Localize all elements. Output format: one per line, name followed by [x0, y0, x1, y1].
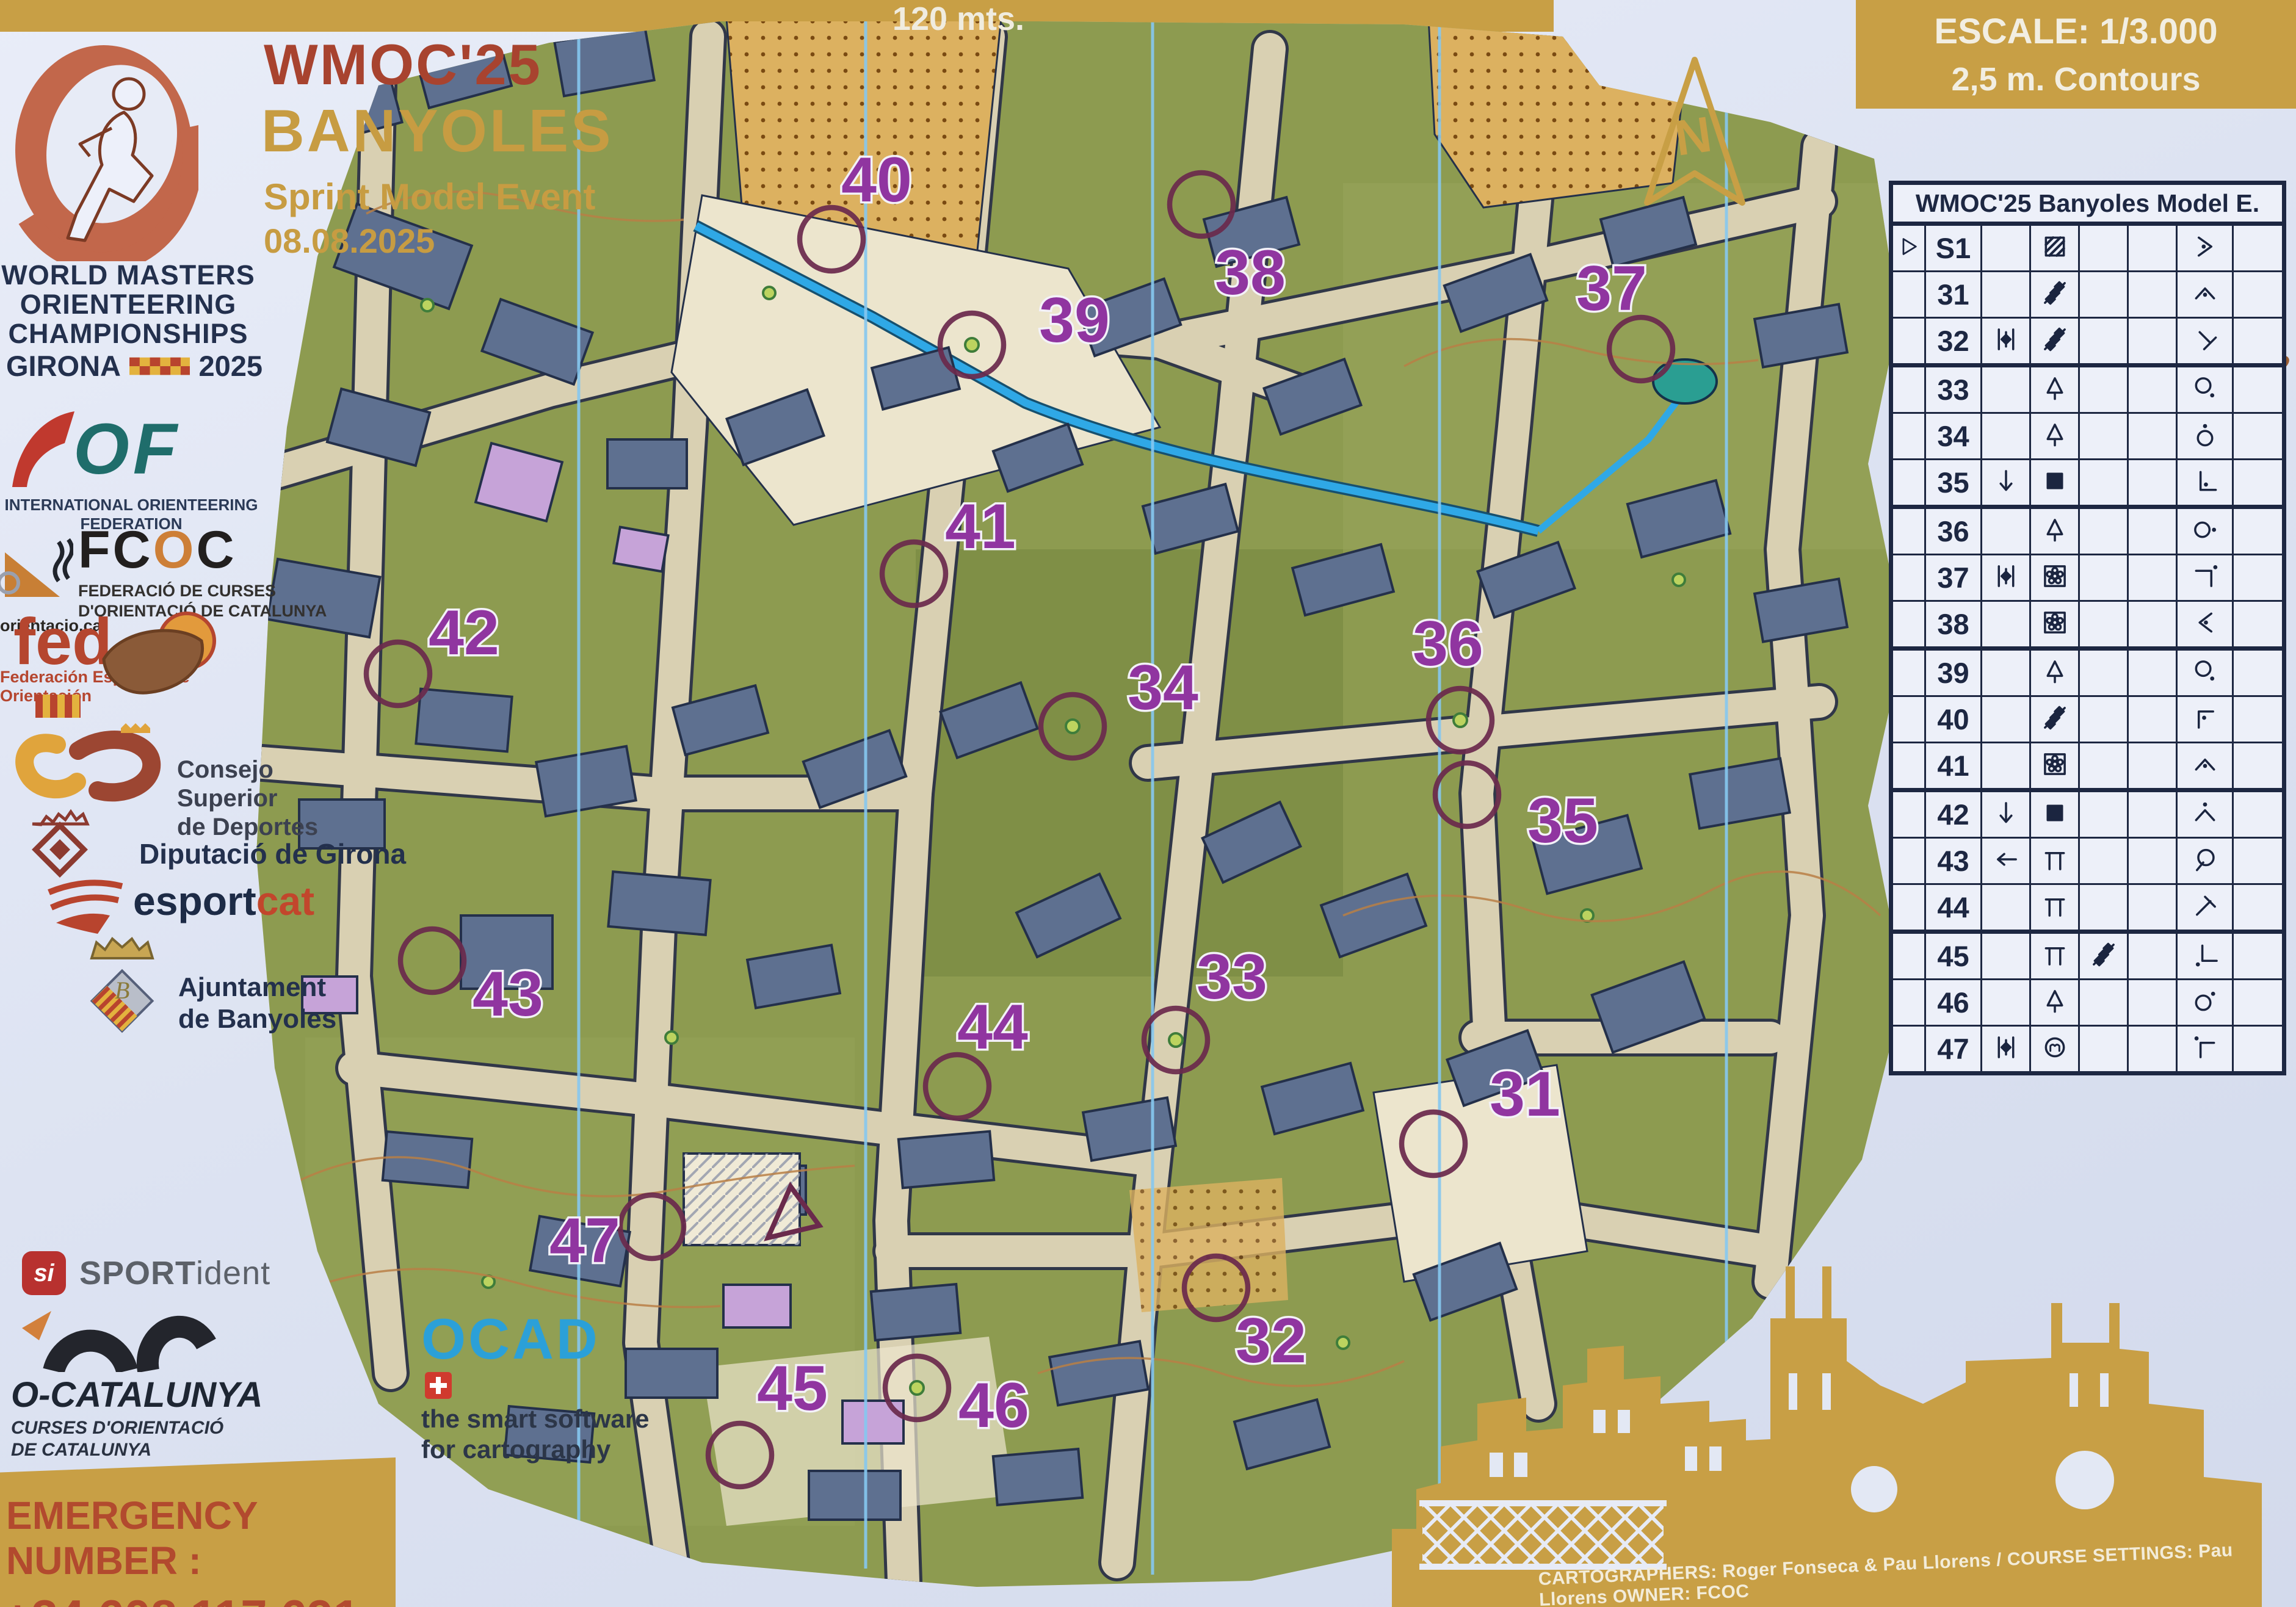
sym-corner-nw-dot-above-icon	[2177, 1026, 2233, 1074]
cd-row-45: 45	[1891, 932, 2284, 980]
cd-row-44: 44	[1891, 884, 2284, 932]
esportcat-name: esportcat	[133, 878, 314, 924]
iof-swoosh-icon	[6, 408, 79, 493]
control-number-45: 45	[757, 1353, 828, 1424]
empty-cell	[2128, 884, 2177, 932]
sym-tree-icon	[2030, 649, 2079, 696]
control-code: 40	[1925, 696, 1982, 743]
sym-corner-ne-dot-icon	[2177, 555, 2233, 601]
cd-row-41: 41	[1891, 743, 2284, 790]
org-line-3: CHAMPIONSHIPS	[0, 318, 256, 350]
empty-cell	[2079, 224, 2128, 272]
control-number-37: 37	[1576, 253, 1647, 324]
empty-cell	[2128, 318, 2177, 366]
sym-building-icon	[2030, 460, 2079, 507]
empty-cell	[2128, 1026, 2177, 1074]
empty-cell	[2233, 318, 2284, 366]
sym-canopy-icon	[2030, 884, 2079, 932]
ocatalunya-caption: CURSES D'ORIENTACIÓ DE CATALUNYA	[11, 1417, 223, 1461]
event-title: WMOC'25	[264, 32, 542, 98]
empty-cell	[2128, 980, 2177, 1026]
ocad-caption-1: the smart software	[421, 1404, 649, 1434]
control-code: 34	[1925, 413, 1982, 460]
control-code: 37	[1925, 555, 1982, 601]
empty-cell	[2128, 460, 2177, 507]
empty-cell	[2079, 460, 2128, 507]
empty-cell	[1982, 224, 2030, 272]
sym-arrow-left-icon	[1982, 838, 2030, 884]
sym-tree-icon	[2030, 366, 2079, 413]
cd-row-40: 40	[1891, 696, 2284, 743]
empty-cell	[1982, 366, 2030, 413]
control-number-34: 34	[1128, 652, 1198, 723]
empty-cell	[2233, 838, 2284, 884]
empty-cell	[1891, 318, 1925, 366]
control-code: 33	[1925, 366, 1982, 413]
sportident-ident: ident	[196, 1255, 270, 1291]
girona-flag-icon	[129, 352, 190, 380]
cd-row-32: 32	[1891, 318, 2284, 366]
sym-start-icon	[1891, 224, 1925, 272]
empty-cell	[2128, 601, 2177, 649]
sym-bend-n-dot-icon	[2177, 743, 2233, 790]
ocatalunya-logo-icon	[11, 1299, 402, 1372]
empty-cell	[2079, 980, 2128, 1026]
empty-cell	[1982, 272, 2030, 318]
empty-cell	[2079, 790, 2128, 838]
empty-cell	[2233, 790, 2284, 838]
control-number-46: 46	[958, 1370, 1029, 1441]
ocatalunya-caption-2: DE CATALUNYA	[11, 1439, 223, 1461]
control-code: 44	[1925, 884, 1982, 932]
esport-part: esport	[133, 878, 256, 923]
girona-2025-row: GIRONA 2025	[6, 349, 263, 383]
sym-circle-m-icon	[2030, 1026, 2079, 1074]
cd-row-33: 33	[1891, 366, 2284, 413]
empty-cell	[2079, 318, 2128, 366]
sym-specveg-icon	[2030, 555, 2079, 601]
emergency-phone: +34 608 117 691	[4, 1589, 396, 1607]
empty-cell	[1891, 696, 1925, 743]
empty-cell	[2079, 366, 2128, 413]
empty-cell	[1891, 1026, 1925, 1074]
sym-building-icon	[2030, 790, 2079, 838]
sym-circle-dot-se-icon	[2177, 366, 2233, 413]
empty-cell	[2128, 790, 2177, 838]
scale-bar-label: 120 mts.	[763, 0, 1154, 38]
control-code: 36	[1925, 507, 1982, 555]
cd-row-31: 31	[1891, 272, 2284, 318]
sym-tree-icon	[2030, 980, 2079, 1026]
sportident-icon: si	[22, 1251, 66, 1295]
wmoc-runner-logo	[9, 35, 198, 261]
ajuntament-caption-2: de Banyoles	[178, 1003, 336, 1035]
iof-letters: OF	[73, 408, 181, 491]
empty-cell	[1982, 743, 2030, 790]
sym-arrow-down-icon	[1982, 790, 2030, 838]
diputacio-caption: Diputació de Girona	[139, 837, 406, 870]
ajuntament-caption-1: Ajuntament	[178, 972, 336, 1003]
sportident-row: si SPORTident	[22, 1251, 270, 1295]
sym-corner-w-dot-icon	[2177, 460, 2233, 507]
empty-cell	[2079, 507, 2128, 555]
empty-cell	[2128, 696, 2177, 743]
sym-paved-icon	[2030, 224, 2079, 272]
empty-cell	[2233, 884, 2284, 932]
cd-row-38: 38	[1891, 601, 2284, 649]
sym-tree-icon	[2030, 413, 2079, 460]
control-number-36: 36	[1413, 608, 1483, 679]
empty-cell	[2233, 696, 2284, 743]
sym-angle-w-dot-icon	[2177, 601, 2233, 649]
contour-interval: 2,5 m. Contours	[1856, 60, 2296, 98]
cd-row-36: 36	[1891, 507, 2284, 555]
empty-cell	[2128, 743, 2177, 790]
empty-cell	[1982, 932, 2030, 980]
ocatalunya-caption-1: CURSES D'ORIENTACIÓ	[11, 1417, 223, 1439]
svg-text:B: B	[115, 977, 129, 1004]
empty-cell	[2079, 413, 2128, 460]
sym-hedge-icon	[2079, 932, 2128, 980]
csd-caption-1: Consejo	[177, 756, 318, 784]
fcoc-fc: FC	[78, 521, 153, 579]
empty-cell	[1982, 696, 2030, 743]
ocad-caption: the smart software for cartography	[421, 1404, 649, 1465]
cd-row-S1: S1	[1891, 224, 2284, 272]
empty-cell	[2233, 743, 2284, 790]
empty-cell	[1891, 507, 1925, 555]
sym-specveg-icon	[2030, 601, 2079, 649]
sym-circle-dot-ne-icon	[2177, 980, 2233, 1026]
empty-cell	[2128, 838, 2177, 884]
table-title: WMOC'25 Banyoles Model E.	[1891, 183, 2284, 224]
control-number-39: 39	[1039, 285, 1110, 356]
sym-circle-dot-se-icon	[2177, 649, 2233, 696]
emergency-banner: EMERGENCY NUMBER : +34 608 117 691	[0, 1457, 396, 1607]
sym-between-icon	[1982, 318, 2030, 366]
empty-cell	[2079, 601, 2128, 649]
csd-caption: Consejo Superior de Deportes	[177, 756, 318, 842]
empty-cell	[1982, 649, 2030, 696]
control-number-35: 35	[1527, 785, 1598, 856]
empty-cell	[1982, 980, 2030, 1026]
sym-end-sw-icon	[2177, 318, 2233, 366]
empty-cell	[2233, 980, 2284, 1026]
empty-cell	[1891, 366, 1925, 413]
control-code: 41	[1925, 743, 1982, 790]
sym-between-icon	[1982, 1026, 2030, 1074]
control-code: 46	[1925, 980, 1982, 1026]
sym-circle-dot-e-icon	[2177, 507, 2233, 555]
empty-cell	[2233, 555, 2284, 601]
sportident-si: si	[34, 1260, 54, 1287]
empty-cell	[1982, 413, 2030, 460]
cd-row-34: 34	[1891, 413, 2284, 460]
empty-cell	[1891, 743, 1925, 790]
sym-canopy-icon	[2030, 838, 2079, 884]
ajuntament-shield-icon: B	[67, 935, 177, 1045]
empty-cell	[1891, 932, 1925, 980]
sportident-sport: SPORT	[79, 1255, 196, 1291]
empty-cell	[2233, 366, 2284, 413]
sym-arrow-ne-bar-icon	[2177, 884, 2233, 932]
sym-junction-e-icon	[2177, 224, 2233, 272]
cd-row-37: 37	[1891, 555, 2284, 601]
cd-row-47: 47	[1891, 1026, 2284, 1074]
cd-row-43: 43	[1891, 838, 2284, 884]
sym-bend-n-dot-above-icon	[2177, 790, 2233, 838]
empty-cell	[1891, 272, 1925, 318]
empty-cell	[2233, 932, 2284, 980]
sym-bend-n-dot-icon	[2177, 272, 2233, 318]
empty-cell	[2079, 696, 2128, 743]
empty-cell	[2233, 507, 2284, 555]
sym-corner-nw-dot-icon	[2177, 696, 2233, 743]
sym-corner-sw-dot-icon	[2177, 932, 2233, 980]
control-code: 42	[1925, 790, 1982, 838]
sym-tree-icon	[2030, 507, 2079, 555]
empty-cell	[2128, 272, 2177, 318]
empty-cell	[2233, 601, 2284, 649]
csd-caption-2: Superior	[177, 784, 318, 813]
sym-hedge-icon	[2030, 696, 2079, 743]
sym-hedge-icon	[2030, 272, 2079, 318]
girona-label: GIRONA	[6, 349, 121, 383]
control-code: S1	[1925, 224, 1982, 272]
empty-cell	[1982, 507, 2030, 555]
empty-cell	[1891, 980, 1925, 1026]
empty-cell	[1891, 790, 1925, 838]
org-line-1: WORLD MASTERS	[0, 259, 256, 291]
sportident-name: SPORTident	[79, 1254, 270, 1292]
photo-of-orienteering-map: 4039383741423634354333443147324546 N	[0, 0, 2296, 1607]
empty-cell	[1891, 601, 1925, 649]
control-number-40: 40	[841, 145, 912, 215]
empty-cell	[1891, 555, 1925, 601]
control-code: 31	[1925, 272, 1982, 318]
fcoc-name: FCOC	[78, 520, 237, 580]
ocatalunya-name: O-CATALUNYA	[11, 1374, 263, 1415]
year-label: 2025	[198, 349, 263, 383]
fedo-flag-icon	[35, 695, 81, 718]
control-number-43: 43	[473, 959, 543, 1030]
empty-cell	[1982, 601, 2030, 649]
empty-cell	[2079, 272, 2128, 318]
esportcat-wave-icon	[43, 874, 128, 941]
cd-row-42: 42	[1891, 790, 2284, 838]
empty-cell	[1891, 838, 1925, 884]
control-number-41: 41	[945, 491, 1016, 562]
leaf-over-fedo	[92, 610, 214, 702]
control-code: 43	[1925, 838, 1982, 884]
control-code: 45	[1925, 932, 1982, 980]
control-number-44: 44	[957, 992, 1028, 1063]
control-number-31: 31	[1490, 1059, 1560, 1130]
empty-cell	[2079, 555, 2128, 601]
empty-cell	[2233, 272, 2284, 318]
control-code: 39	[1925, 649, 1982, 696]
empty-cell	[2079, 884, 2128, 932]
control-number-42: 42	[429, 598, 499, 668]
control-code: 35	[1925, 460, 1982, 507]
sym-specveg-icon	[2030, 743, 2079, 790]
empty-cell	[1891, 649, 1925, 696]
fcoc-c: C	[197, 521, 237, 579]
empty-cell	[2128, 224, 2177, 272]
empty-cell	[1891, 413, 1925, 460]
sym-circle-tail-icon	[2177, 838, 2233, 884]
csd-logo-icon	[5, 723, 176, 815]
control-number-33: 33	[1197, 942, 1267, 1013]
empty-cell	[1891, 884, 1925, 932]
control-number-38: 38	[1215, 237, 1286, 308]
cd-row-35: 35	[1891, 460, 2284, 507]
scale-value: ESCALE: 1/3.000	[1856, 11, 2296, 52]
empty-cell	[2128, 366, 2177, 413]
empty-cell	[2233, 413, 2284, 460]
org-line-2: ORIENTEERING	[0, 289, 256, 320]
control-description-table: WMOC'25 Banyoles Model E. S1313233343536…	[1889, 181, 2286, 1075]
empty-cell	[2233, 224, 2284, 272]
control-code: 38	[1925, 601, 1982, 649]
empty-cell	[2079, 743, 2128, 790]
control-number-47: 47	[549, 1205, 620, 1276]
empty-cell	[2233, 1026, 2284, 1074]
empty-cell	[2128, 507, 2177, 555]
empty-cell	[2128, 555, 2177, 601]
fcoc-o: O	[153, 521, 197, 579]
scale-box-text: ESCALE: 1/3.000 2,5 m. Contours	[1856, 0, 2296, 98]
empty-cell	[1982, 884, 2030, 932]
event-subtitle: Sprint Model Event	[264, 176, 595, 218]
ocad-caption-2: for cartography	[421, 1434, 649, 1465]
empty-cell	[2079, 1026, 2128, 1074]
empty-cell	[2128, 413, 2177, 460]
event-location: BANYOLES	[261, 96, 614, 165]
svg-text:N: N	[1671, 106, 1715, 166]
empty-cell	[2128, 649, 2177, 696]
event-date: 08.08.2025	[264, 221, 435, 261]
control-number-32: 32	[1236, 1305, 1306, 1376]
emergency-label: EMERGENCY NUMBER :	[6, 1493, 396, 1583]
ocad-swiss-cross-icon	[425, 1372, 452, 1399]
sym-arrow-down-icon	[1982, 460, 2030, 507]
empty-cell	[2079, 649, 2128, 696]
fcoc-caption-1: FEDERACIÓ DE CURSES	[78, 581, 327, 601]
sym-canopy-icon	[2030, 932, 2079, 980]
empty-cell	[2233, 460, 2284, 507]
cd-row-39: 39	[1891, 649, 2284, 696]
cd-row-46: 46	[1891, 980, 2284, 1026]
control-code: 47	[1925, 1026, 1982, 1074]
empty-cell	[1891, 460, 1925, 507]
sym-hedge-icon	[2030, 318, 2079, 366]
sym-between-icon	[1982, 555, 2030, 601]
empty-cell	[2128, 932, 2177, 980]
ajuntament-caption: Ajuntament de Banyoles	[178, 972, 336, 1035]
sym-circle-dot-n-icon	[2177, 413, 2233, 460]
control-code: 32	[1925, 318, 1982, 366]
ocad-block: OCAD the smart software for cartography	[421, 1306, 649, 1465]
cat-part: cat	[256, 878, 314, 923]
empty-cell	[2079, 838, 2128, 884]
empty-cell	[2233, 649, 2284, 696]
ocad-name: OCAD	[421, 1306, 600, 1372]
